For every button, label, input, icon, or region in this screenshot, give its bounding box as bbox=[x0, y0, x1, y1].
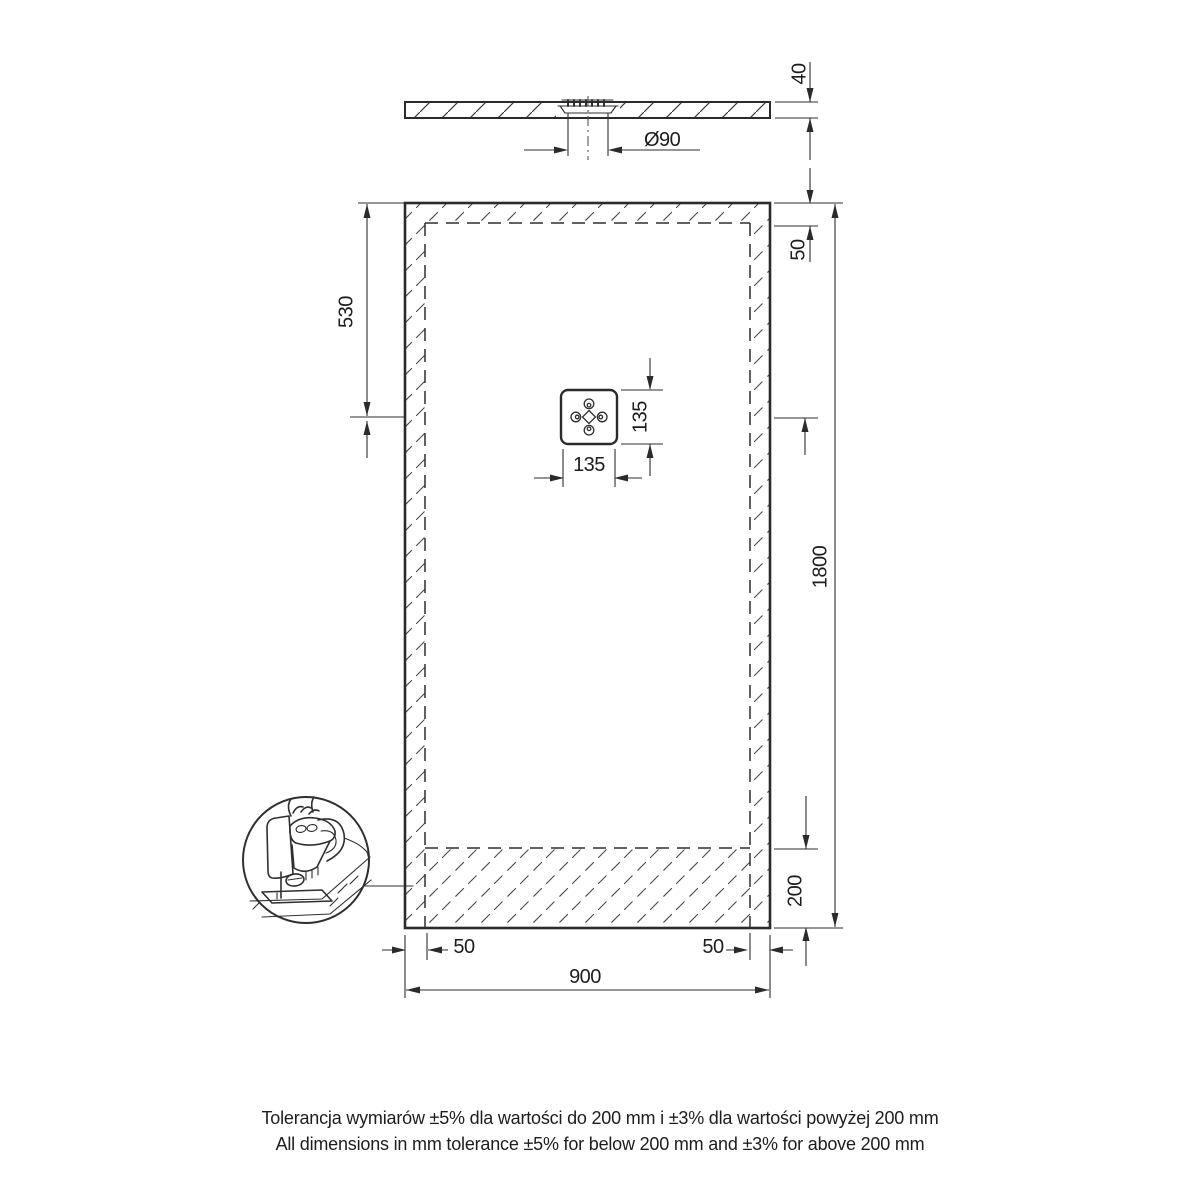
drawing-sheet: Ø90 40 bbox=[0, 0, 1200, 1200]
dimension-cut-margin-top: 50 bbox=[774, 168, 818, 262]
dimension-total-length: 1800 bbox=[774, 203, 843, 928]
dimension-cut-margin-right: 50 bbox=[702, 936, 793, 958]
dim-label-profile-thickness: 40 bbox=[788, 63, 810, 85]
tolerance-note-pl: Tolerancja wymiarów ±5% dla wartości do … bbox=[261, 1108, 938, 1128]
profile-view: Ø90 40 bbox=[405, 62, 818, 160]
tolerance-note-en: All dimensions in mm tolerance ±5% for b… bbox=[276, 1134, 925, 1154]
tolerance-notes: Tolerancja wymiarów ±5% dla wartości do … bbox=[261, 1108, 938, 1154]
drain-level-witness-mark bbox=[774, 418, 818, 455]
dimension-cut-zone-bottom: 200 bbox=[774, 796, 818, 966]
technical-drawing-canvas: Ø90 40 bbox=[0, 0, 1200, 1200]
dim-label-drain-box-height: 135 bbox=[629, 401, 651, 433]
dim-label-cut-margin-right: 50 bbox=[702, 936, 724, 958]
dim-label-cut-margin-left: 50 bbox=[453, 936, 475, 958]
dim-label-drain-diameter: Ø90 bbox=[644, 129, 681, 151]
dim-label-total-width: 900 bbox=[569, 966, 601, 988]
dimension-cut-margin-left: 50 bbox=[382, 936, 475, 958]
dim-label-drain-box-width: 135 bbox=[573, 454, 605, 476]
dimension-total-width: 900 bbox=[406, 966, 769, 994]
dimension-drain-diameter: Ø90 bbox=[524, 118, 700, 156]
plan-view: 530 50 1800 bbox=[335, 168, 843, 998]
dim-label-cut-margin-top: 50 bbox=[787, 239, 809, 261]
drain-box bbox=[561, 390, 617, 444]
detail-circle bbox=[243, 797, 369, 923]
dimension-bottom-group: 50 50 900 bbox=[382, 933, 793, 998]
dim-label-total-length: 1800 bbox=[809, 545, 831, 588]
dim-label-drain-offset-top: 530 bbox=[335, 296, 357, 328]
dimension-profile-thickness: 40 bbox=[775, 62, 818, 160]
dim-label-cut-zone-bottom: 200 bbox=[784, 875, 806, 907]
dimension-drain-offset-top: 530 bbox=[335, 203, 406, 458]
jigsaw-cutting-detail bbox=[243, 797, 413, 923]
